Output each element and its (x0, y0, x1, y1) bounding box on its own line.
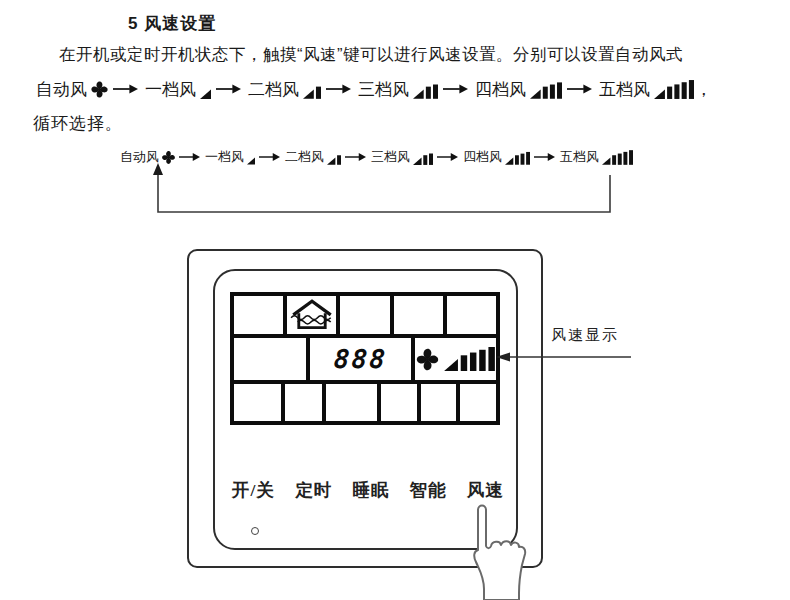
pointing-hand-icon (448, 497, 548, 600)
display-cell-blank (340, 296, 389, 334)
arrow-up-icon (153, 163, 163, 175)
arrow-right-icon (534, 152, 555, 162)
lcd-display-grid: 888 (230, 292, 500, 425)
display-cell-blank (326, 384, 377, 421)
display-cell-blank (381, 384, 417, 421)
fan-icon (415, 347, 440, 372)
fan-speed-5-icon (654, 80, 694, 99)
arrow-right-icon (326, 83, 351, 95)
arrow-left-icon (495, 350, 631, 364)
fan-speed-1-icon (200, 80, 211, 99)
outro-text: 循环选择。 (33, 112, 123, 135)
display-cell-blank (421, 384, 457, 421)
fan-speed-display-cell (415, 338, 496, 380)
display-cell-blank (447, 296, 496, 334)
sleep-key-label: 睡眠 (352, 478, 389, 502)
display-cell-blank (234, 384, 281, 421)
speed-label-4: 四档风 (475, 78, 526, 101)
speed-cycle-inline: 自动风 一档风 二档风 三档风 四档风 五档风 ， (33, 74, 712, 104)
digits-display-cell: 888 (310, 338, 411, 380)
speed-label-2: 二档风 (248, 78, 299, 101)
speed-label-5: 五档风 (599, 78, 650, 101)
arrow-right-icon (179, 152, 200, 162)
trailing-comma: ， (695, 78, 712, 101)
arrow-right-icon (567, 83, 592, 95)
arrow-right-icon (113, 83, 138, 95)
arrow-right-icon (216, 83, 241, 95)
display-cell-blank (460, 384, 496, 421)
display-cell-blank (234, 338, 306, 380)
house-airflow-icon (289, 299, 335, 332)
fan-speed-3-icon (413, 80, 438, 99)
speed-label-1: 一档风 (145, 78, 196, 101)
fan-speed-display-ramp (444, 347, 495, 371)
timer-key-label: 定时 (295, 478, 332, 502)
seven-segment-digits: 888 (333, 344, 388, 374)
speed-label-auto: 自动风 (36, 78, 87, 101)
section-heading: 5 风速设置 (128, 12, 216, 35)
display-cell-blank (234, 296, 283, 334)
arrow-right-icon (345, 152, 366, 162)
callout-label: 风速显示 (551, 326, 619, 345)
speed-label-3: 三档风 (358, 78, 409, 101)
fan-speed-4-icon (530, 80, 562, 99)
display-cell-blank (285, 384, 323, 421)
indicator-dot (251, 527, 259, 535)
arrow-right-icon (443, 83, 468, 95)
power-key-label: 开/关 (232, 478, 275, 502)
room-airflow-cell (287, 296, 336, 334)
fan-icon (90, 80, 109, 99)
fan-speed-2-icon (303, 80, 321, 99)
display-cell-blank (394, 296, 443, 334)
cycle-loop-arrow (140, 162, 626, 220)
smart-key-label: 智能 (410, 478, 447, 502)
intro-text: 在开机或定时开机状态下，触摸“风速”键可以进行风速设置。分别可以设置自动风式 (59, 44, 683, 66)
arrow-right-icon (259, 152, 280, 162)
arrow-right-icon (437, 152, 458, 162)
